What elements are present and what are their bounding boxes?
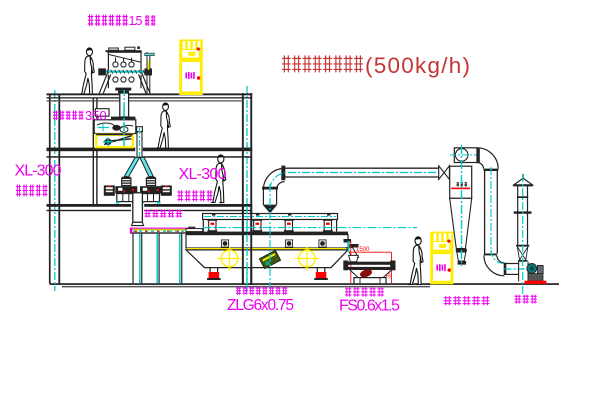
svg-text:FS0.6x1.5: FS0.6x1.5 <box>339 298 400 315</box>
svg-text:350: 350 <box>85 108 107 123</box>
svg-text:ZLG6x0.75: ZLG6x0.75 <box>227 297 294 314</box>
svg-text:1500: 1500 <box>356 247 370 253</box>
svg-text:XL-300: XL-300 <box>15 163 62 180</box>
svg-text:XL-300: XL-300 <box>179 166 227 183</box>
svg-text:(500kg/h): (500kg/h) <box>365 53 470 78</box>
svg-text:1.5: 1.5 <box>129 14 143 28</box>
